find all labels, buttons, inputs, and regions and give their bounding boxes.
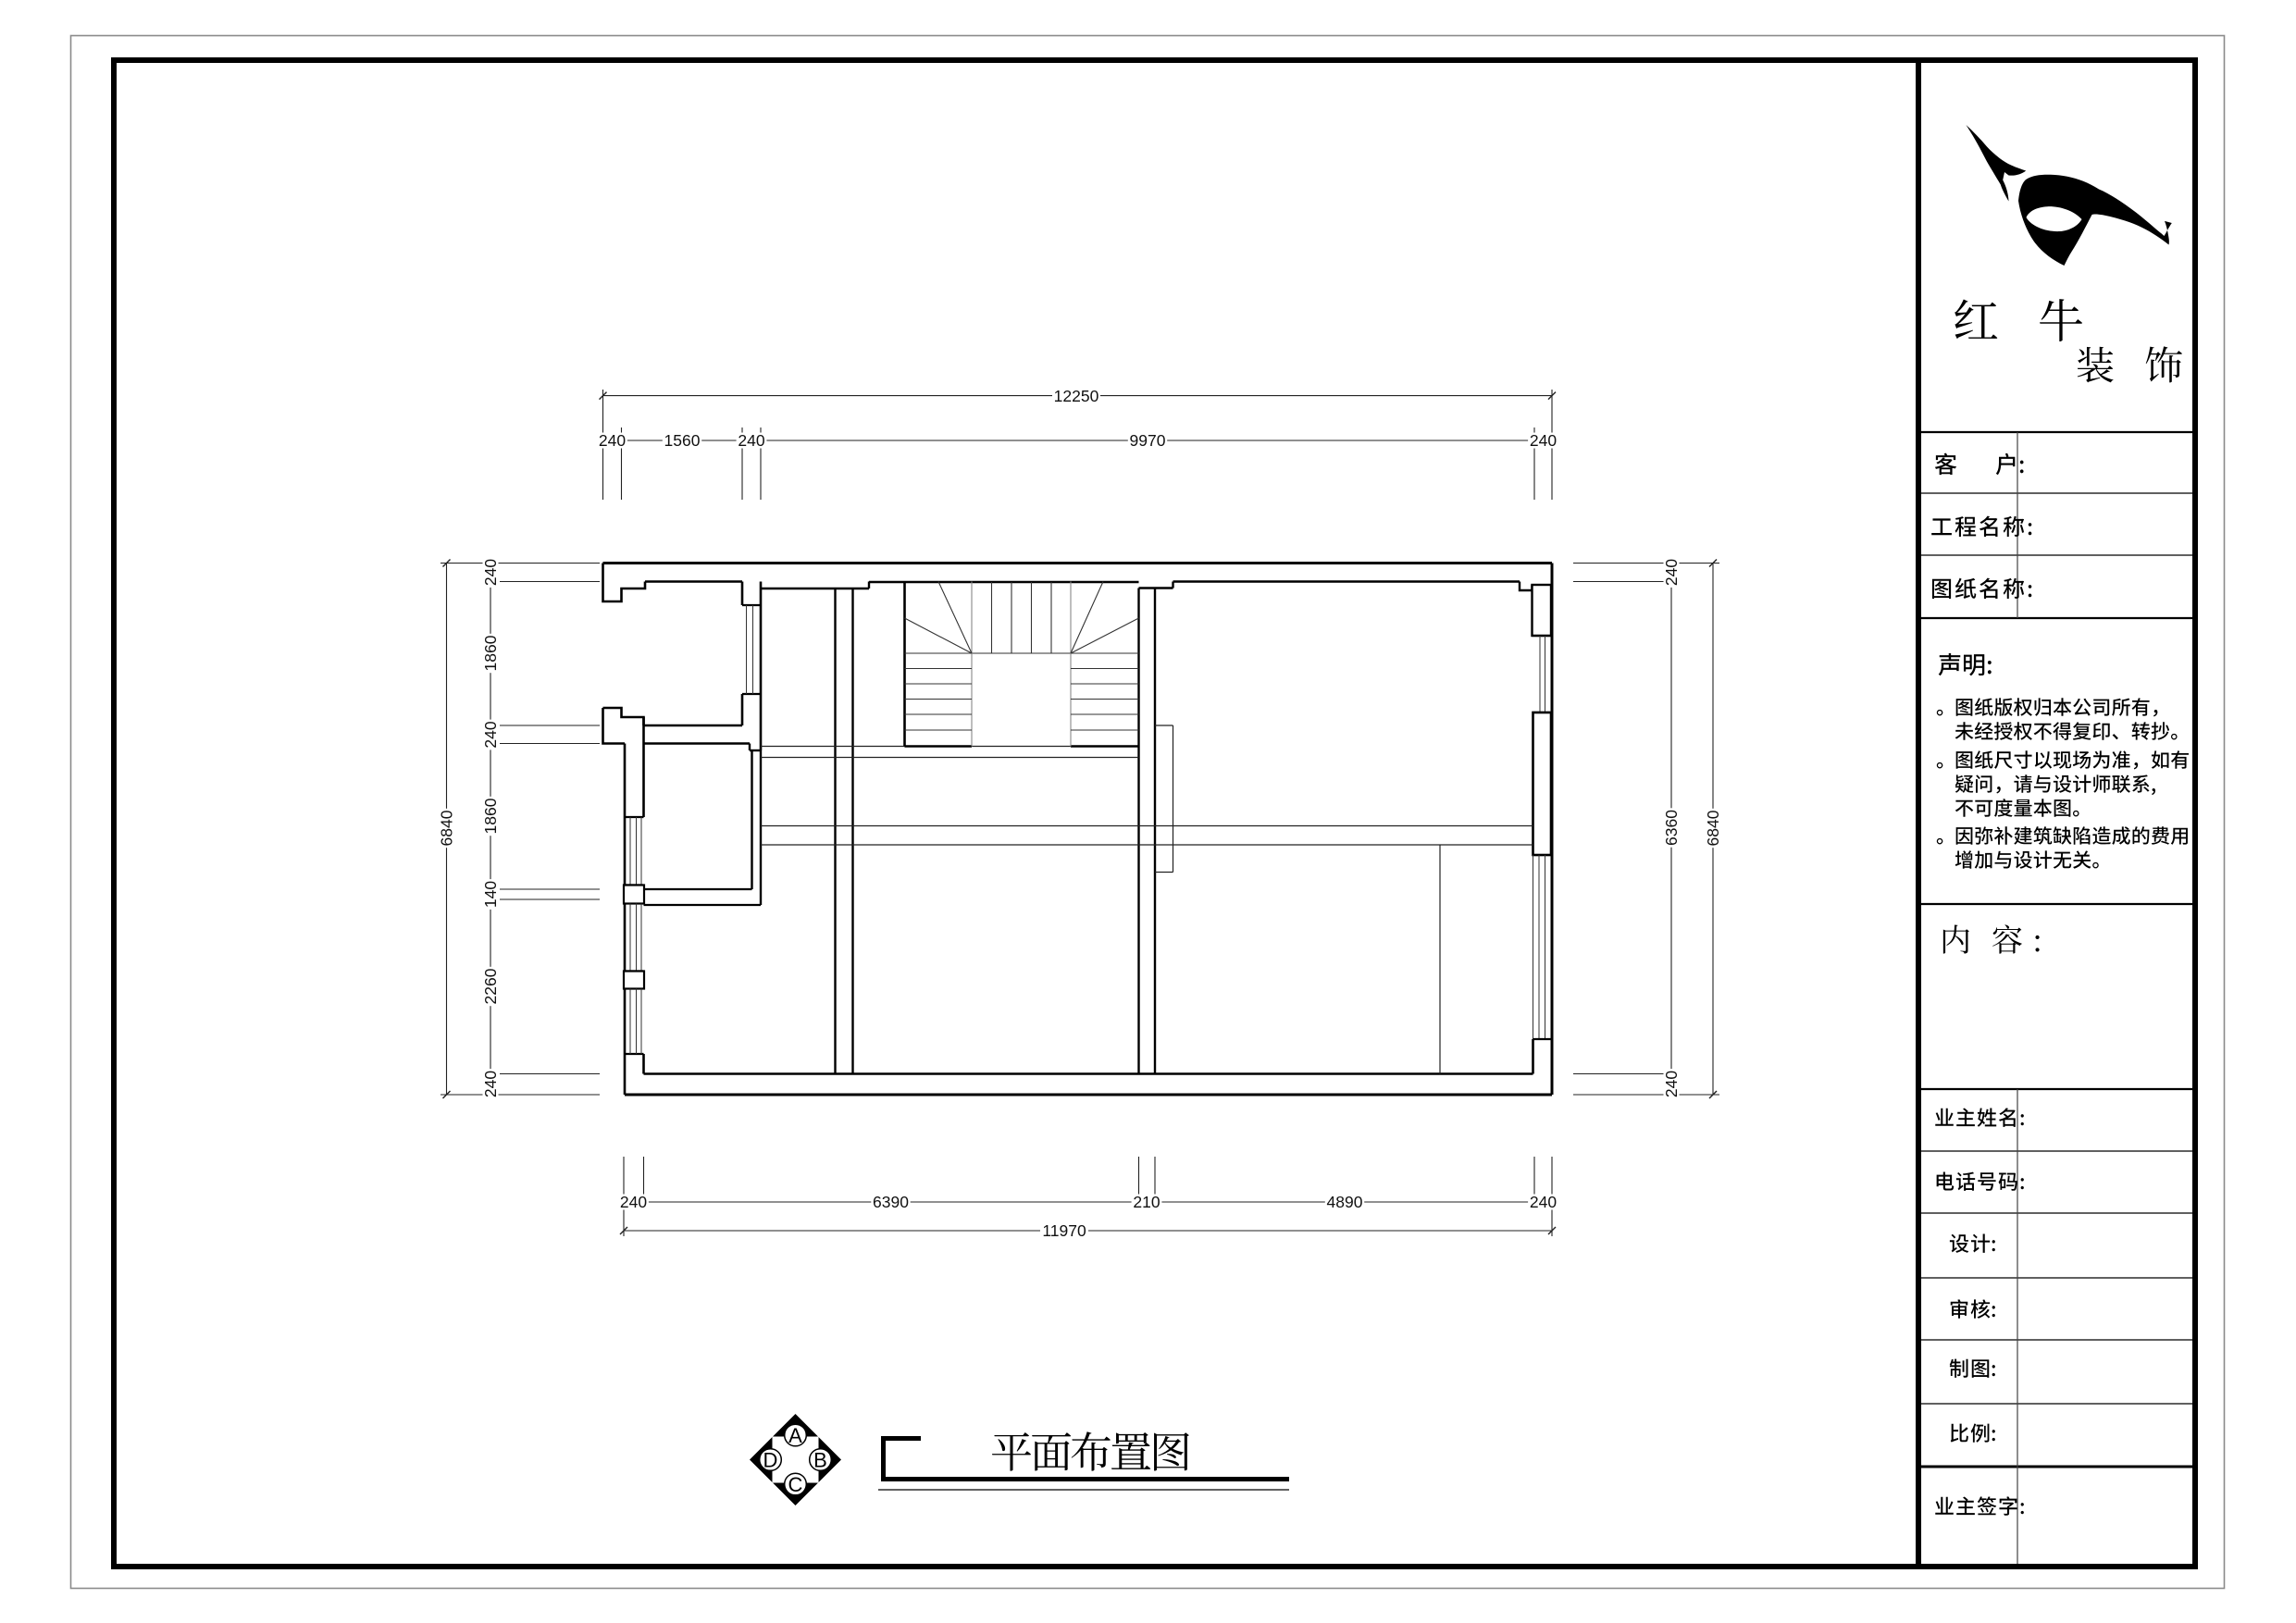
svg-text:1860: 1860 xyxy=(481,798,500,834)
svg-text:240: 240 xyxy=(1662,559,1681,586)
svg-text:4890: 4890 xyxy=(1327,1193,1363,1211)
svg-text:9970: 9970 xyxy=(1130,431,1166,450)
svg-text:B: B xyxy=(813,1449,827,1472)
svg-text:11970: 11970 xyxy=(1042,1221,1086,1240)
svg-text:240: 240 xyxy=(481,559,500,586)
svg-text:240: 240 xyxy=(599,431,626,450)
svg-text:6390: 6390 xyxy=(873,1193,909,1211)
svg-text:1560: 1560 xyxy=(664,431,701,450)
svg-text:D: D xyxy=(763,1449,778,1472)
svg-text:240: 240 xyxy=(1530,1193,1557,1211)
svg-text:2260: 2260 xyxy=(481,968,500,1004)
svg-text:240: 240 xyxy=(620,1193,647,1211)
svg-text:1860: 1860 xyxy=(481,635,500,671)
svg-text:240: 240 xyxy=(1662,1071,1681,1097)
svg-text:240: 240 xyxy=(481,1071,500,1097)
svg-text:6840: 6840 xyxy=(1704,810,1722,846)
svg-text:140: 140 xyxy=(481,881,500,908)
svg-text:240: 240 xyxy=(1530,431,1557,450)
svg-text:12250: 12250 xyxy=(1054,387,1099,405)
svg-text:6840: 6840 xyxy=(438,810,456,846)
svg-text:A: A xyxy=(788,1424,802,1447)
svg-text:240: 240 xyxy=(738,431,764,450)
svg-text:C: C xyxy=(788,1473,803,1496)
svg-text:240: 240 xyxy=(481,721,500,748)
svg-text:6360: 6360 xyxy=(1662,810,1681,846)
svg-text:210: 210 xyxy=(1133,1193,1160,1211)
